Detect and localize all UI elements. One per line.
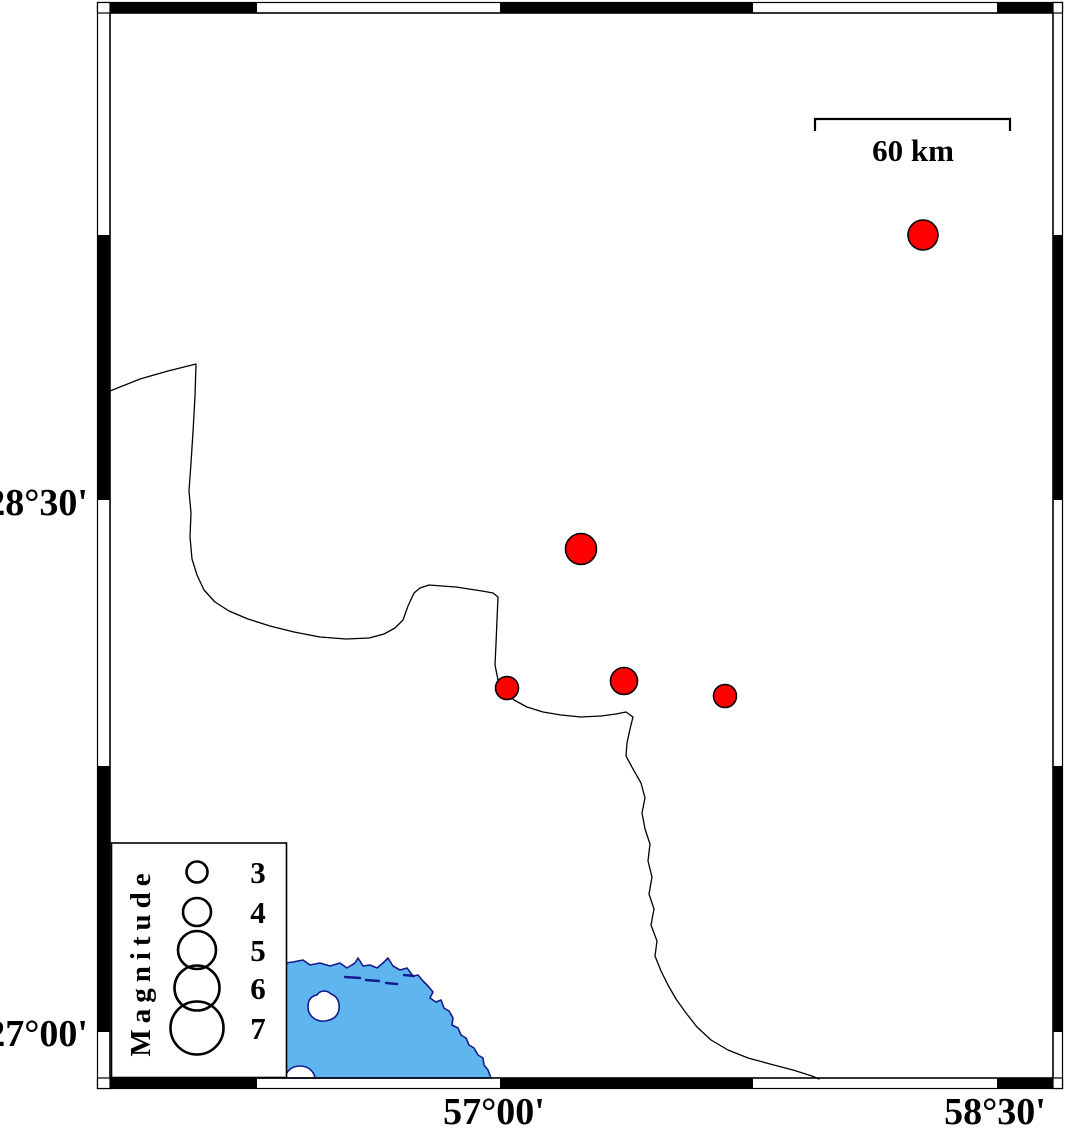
frame-corner bbox=[98, 1078, 111, 1089]
frame-segment-left bbox=[98, 235, 111, 500]
frame-segment-top bbox=[500, 3, 753, 14]
frame-corner bbox=[1053, 1078, 1063, 1089]
frame-segment-right bbox=[1053, 235, 1063, 500]
island bbox=[308, 991, 339, 1021]
legend-value-mag-6: 6 bbox=[250, 971, 266, 1006]
frame-segment-bottom bbox=[500, 1078, 753, 1089]
frame-segment-top bbox=[997, 3, 1053, 14]
earthquake-marker bbox=[566, 534, 597, 565]
scale-bar-label: 60 km bbox=[872, 133, 954, 168]
legend-value-mag-4: 4 bbox=[250, 895, 266, 930]
frame-segment-bottom bbox=[997, 1078, 1053, 1089]
frame-corner bbox=[98, 3, 111, 14]
frame-segment-left bbox=[98, 766, 111, 1032]
frame-corner bbox=[1053, 3, 1063, 14]
frame-segment-bottom bbox=[110, 1078, 257, 1089]
earthquake-marker bbox=[496, 677, 519, 700]
earthquake-marker bbox=[714, 685, 737, 708]
earthquake-marker bbox=[908, 220, 938, 250]
magnitude-legend: Magnitude 34567 bbox=[112, 843, 287, 1078]
axis-label-left: 28°30' bbox=[0, 482, 88, 524]
earthquake-marker bbox=[611, 668, 638, 695]
legend-value-mag-3: 3 bbox=[250, 855, 266, 890]
axis-label-bottom: 58°30' bbox=[944, 1091, 1046, 1128]
frame-segment-top bbox=[110, 3, 257, 14]
frame-segment-right bbox=[1053, 766, 1063, 1032]
axis-label-bottom: 57°00' bbox=[443, 1091, 545, 1128]
legend-value-mag-7: 7 bbox=[250, 1011, 266, 1046]
seismicity-map-figure: 60 km 28°30'27°00'57°00'58°30' Magnitude… bbox=[0, 0, 1066, 1128]
legend-title: Magnitude bbox=[125, 867, 157, 1056]
axis-label-left: 27°00' bbox=[0, 1013, 88, 1055]
legend-value-mag-5: 5 bbox=[250, 933, 266, 968]
